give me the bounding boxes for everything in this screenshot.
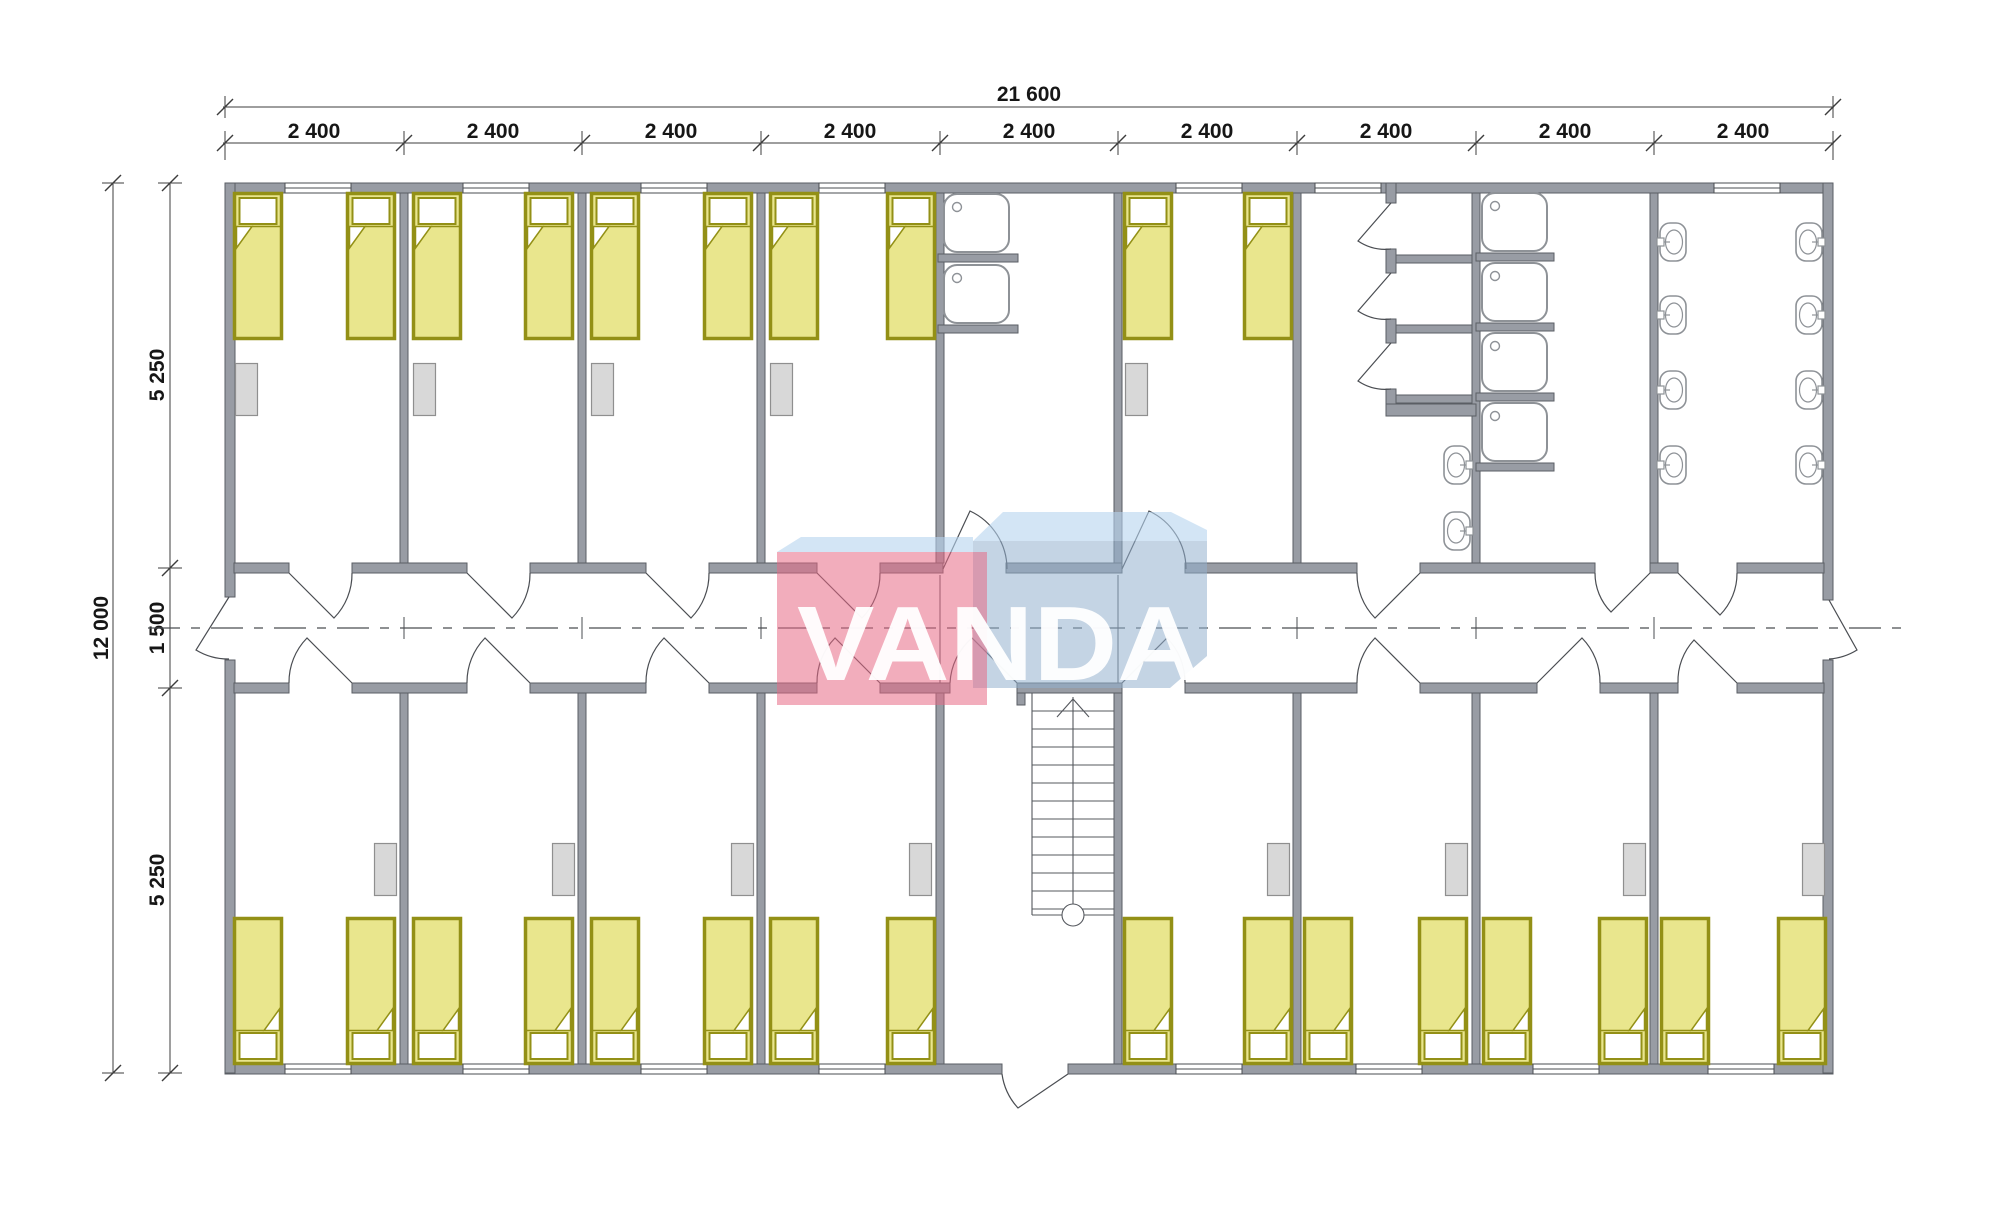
dim-rooms-top: 5 250 xyxy=(146,349,169,402)
washbasin xyxy=(1796,446,1825,484)
window xyxy=(641,183,707,193)
window xyxy=(285,1064,351,1074)
entrance-door xyxy=(1002,1074,1068,1108)
shower-tray xyxy=(1482,263,1547,321)
dim-bay-3: 2 400 xyxy=(645,120,698,143)
bed xyxy=(592,919,639,1064)
bed xyxy=(1779,919,1826,1064)
bed xyxy=(1484,919,1531,1064)
bed xyxy=(705,919,752,1064)
bed xyxy=(235,919,282,1064)
washbasin xyxy=(1444,446,1473,484)
wardrobe xyxy=(414,364,436,416)
washbasin xyxy=(1796,223,1825,261)
bed xyxy=(592,194,639,339)
dim-bay-4: 2 400 xyxy=(824,120,877,143)
bed xyxy=(348,919,395,1064)
dim-bay-1: 2 400 xyxy=(288,120,341,143)
window xyxy=(285,183,351,193)
window xyxy=(1176,183,1242,193)
wardrobe xyxy=(1126,364,1148,416)
bed xyxy=(1662,919,1709,1064)
wardrobe xyxy=(1624,844,1646,896)
bed xyxy=(888,194,935,339)
bed xyxy=(1420,919,1467,1064)
dim-rooms-bottom: 5 250 xyxy=(146,854,169,907)
bed xyxy=(1600,919,1647,1064)
bed xyxy=(1245,194,1292,339)
washbasin xyxy=(1444,512,1473,550)
staircase xyxy=(1032,693,1114,926)
window xyxy=(1176,1064,1242,1074)
dim-bay-6: 2 400 xyxy=(1181,120,1234,143)
window xyxy=(463,1064,529,1074)
wardrobe xyxy=(236,364,258,416)
bed xyxy=(771,194,818,339)
dim-total-width: 21 600 xyxy=(997,83,1061,106)
shower-tray xyxy=(1482,403,1547,461)
wardrobe xyxy=(1268,844,1290,896)
window xyxy=(819,1064,885,1074)
logo-red-top-face xyxy=(777,537,973,552)
sanitary-fixtures xyxy=(944,193,1825,550)
bed xyxy=(888,919,935,1064)
wardrobe xyxy=(1803,844,1825,896)
washbasin xyxy=(1796,296,1825,334)
bed xyxy=(1125,919,1172,1064)
bed xyxy=(1245,919,1292,1064)
bed xyxy=(705,194,752,339)
bed xyxy=(414,919,461,1064)
stair-newel xyxy=(1062,904,1084,926)
shower-tray xyxy=(944,194,1009,252)
window xyxy=(1714,183,1780,193)
dim-bay-9: 2 400 xyxy=(1717,120,1770,143)
washbasin xyxy=(1796,371,1825,409)
logo-text: VANDA xyxy=(797,585,1201,703)
shower-tray xyxy=(1482,333,1547,391)
window xyxy=(819,183,885,193)
wardrobe xyxy=(592,364,614,416)
window xyxy=(1315,183,1381,193)
wardrobe xyxy=(910,844,932,896)
bed xyxy=(348,194,395,339)
bed xyxy=(526,919,573,1064)
floor-plan: 21 600 2 400 2 400 2 400 2 400 2 400 2 4… xyxy=(0,0,2000,1219)
shower-tray xyxy=(1482,193,1547,251)
wardrobe xyxy=(375,844,397,896)
window xyxy=(1533,1064,1599,1074)
wardrobe xyxy=(732,844,754,896)
bed xyxy=(235,194,282,339)
window xyxy=(641,1064,707,1074)
exit-door-right xyxy=(1829,600,1857,659)
bed xyxy=(414,194,461,339)
bed xyxy=(526,194,573,339)
dim-bay-5: 2 400 xyxy=(1003,120,1056,143)
watermark-logo: VANDA xyxy=(777,512,1207,705)
shower-tray xyxy=(944,265,1009,323)
washbasin xyxy=(1657,223,1686,261)
washbasin xyxy=(1657,446,1686,484)
wardrobe xyxy=(553,844,575,896)
washbasin xyxy=(1657,371,1686,409)
floor-plan-svg: 21 600 2 400 2 400 2 400 2 400 2 400 2 4… xyxy=(0,0,2000,1219)
window xyxy=(1708,1064,1774,1074)
dim-bay-8: 2 400 xyxy=(1539,120,1592,143)
wardrobe xyxy=(771,364,793,416)
dim-total-height: 12 000 xyxy=(90,596,113,660)
logo-blue-top-face xyxy=(973,512,1207,541)
window xyxy=(463,183,529,193)
dim-bay-7: 2 400 xyxy=(1360,120,1413,143)
dim-bay-2: 2 400 xyxy=(467,120,520,143)
window xyxy=(1356,1064,1422,1074)
bed xyxy=(771,919,818,1064)
washbasin xyxy=(1657,296,1686,334)
bed xyxy=(1305,919,1352,1064)
bed xyxy=(1125,194,1172,339)
wardrobe xyxy=(1446,844,1468,896)
